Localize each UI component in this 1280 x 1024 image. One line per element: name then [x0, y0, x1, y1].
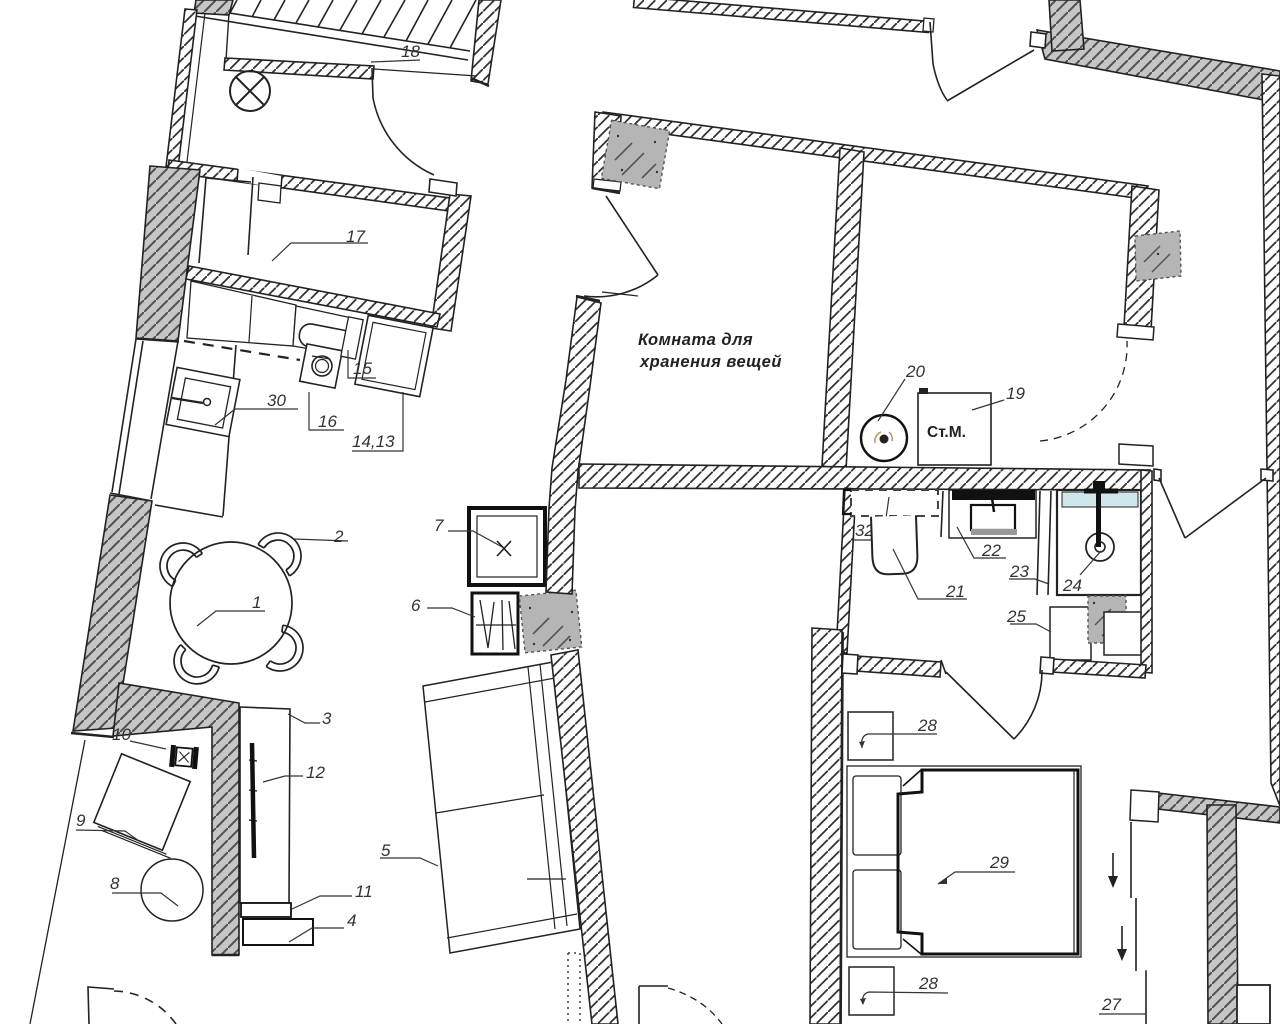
svg-text:9: 9 — [76, 811, 86, 830]
svg-text:20: 20 — [905, 362, 925, 381]
svg-text:19: 19 — [1006, 384, 1025, 403]
svg-text:28: 28 — [917, 716, 937, 735]
svg-text:5: 5 — [381, 841, 391, 860]
svg-text:12: 12 — [306, 763, 325, 782]
svg-text:22: 22 — [981, 541, 1001, 560]
svg-text:23: 23 — [1009, 562, 1029, 581]
svg-text:18: 18 — [401, 42, 420, 61]
svg-text:16: 16 — [318, 412, 337, 431]
svg-text:15: 15 — [353, 359, 372, 378]
svg-text:21: 21 — [945, 582, 965, 601]
svg-text:4: 4 — [347, 911, 356, 930]
svg-text:24: 24 — [1062, 576, 1082, 595]
svg-text:27: 27 — [1101, 995, 1121, 1014]
svg-text:1: 1 — [252, 593, 261, 612]
svg-text:8: 8 — [110, 874, 120, 893]
svg-text:25: 25 — [1006, 607, 1026, 626]
svg-text:14,13: 14,13 — [352, 432, 395, 451]
svg-text:29: 29 — [989, 853, 1009, 872]
svg-text:Комната для: Комната для — [638, 331, 753, 349]
svg-text:10: 10 — [112, 725, 131, 744]
svg-text:28: 28 — [918, 974, 938, 993]
svg-text:Ст.М.: Ст.М. — [927, 424, 966, 441]
svg-text:2: 2 — [333, 527, 344, 546]
svg-text:7: 7 — [434, 516, 444, 535]
svg-text:11: 11 — [355, 882, 373, 901]
svg-text:хранения вещей: хранения вещей — [639, 353, 782, 371]
svg-text:6: 6 — [411, 596, 421, 615]
svg-text:3: 3 — [322, 709, 332, 728]
svg-text:30: 30 — [267, 391, 286, 410]
